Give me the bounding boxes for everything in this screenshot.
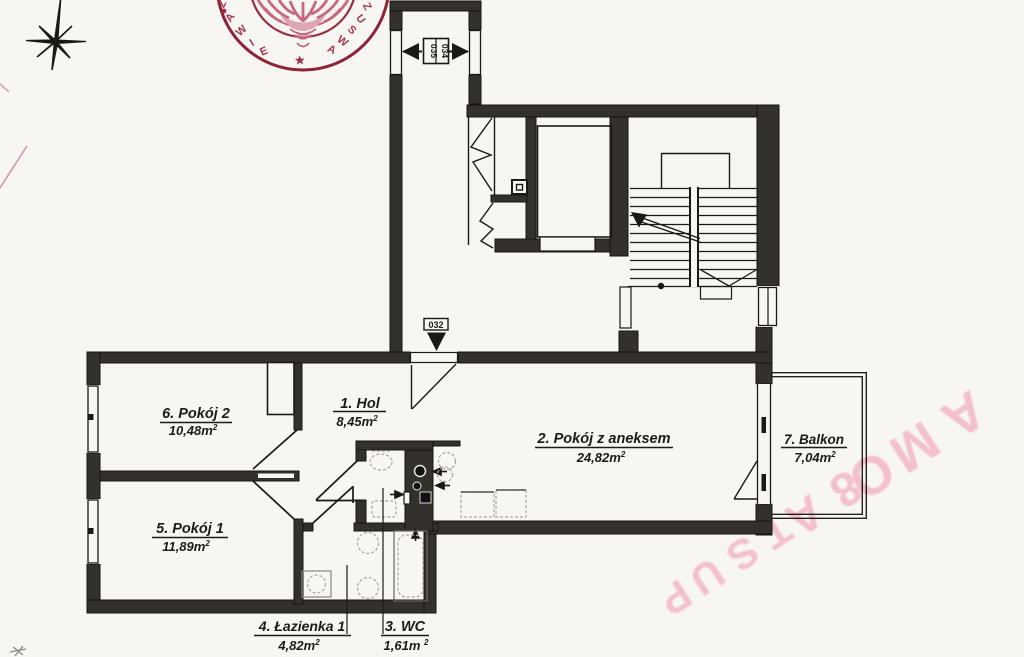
svg-text:6. Pokój 2: 6. Pokój 2 (162, 406, 230, 422)
svg-text:032: 032 (428, 320, 443, 330)
svg-text:11,89m2: 11,89m2 (162, 539, 210, 554)
svg-text:5. Pokój 1: 5. Pokój 1 (156, 521, 224, 537)
svg-text:10,48m2: 10,48m2 (169, 423, 218, 438)
svg-text:1,61m 2: 1,61m 2 (384, 638, 429, 653)
svg-text:035: 035 (429, 44, 439, 58)
svg-text:2. Pokój z aneksem: 2. Pokój z aneksem (537, 431, 671, 447)
svg-text:8,45m2: 8,45m2 (336, 414, 378, 429)
svg-text:4,82m2: 4,82m2 (277, 638, 320, 653)
svg-text:7. Balkon: 7. Balkon (784, 432, 844, 447)
svg-text:3. WC: 3. WC (385, 619, 426, 635)
svg-text:034: 034 (440, 44, 450, 58)
svg-text:24,82m2: 24,82m2 (576, 450, 626, 465)
svg-text:4. Łazienka 1: 4. Łazienka 1 (258, 618, 346, 634)
svg-text:1. Hol: 1. Hol (340, 396, 380, 412)
svg-text:7,04m2: 7,04m2 (794, 450, 836, 465)
